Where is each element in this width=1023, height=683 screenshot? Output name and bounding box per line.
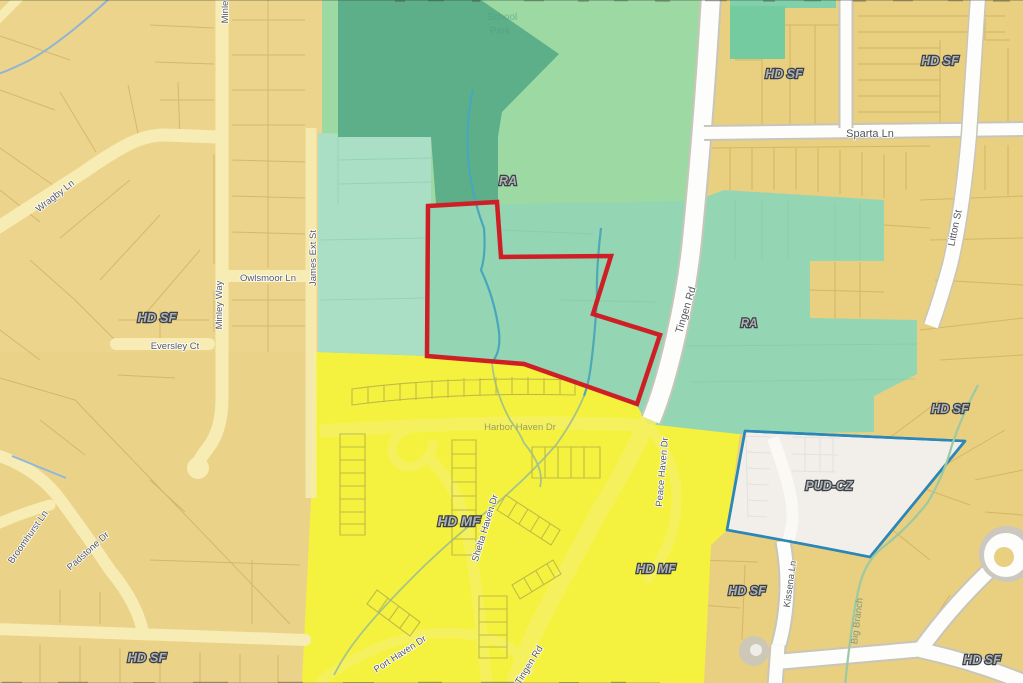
svg-text:HD SF: HD SF <box>138 310 178 325</box>
svg-text:James Ext St: James Ext St <box>308 230 319 286</box>
svg-text:RA: RA <box>499 174 517 188</box>
svg-text:Owlsmoor Ln: Owlsmoor Ln <box>240 273 296 284</box>
svg-text:Minley Way: Minley Way <box>214 280 225 329</box>
svg-text:Eversley Ct: Eversley Ct <box>151 341 200 352</box>
svg-text:HD SF: HD SF <box>921 54 959 68</box>
svg-text:RA: RA <box>741 318 758 330</box>
svg-text:School: School <box>487 12 518 23</box>
svg-text:HD SF: HD SF <box>765 67 803 81</box>
svg-text:PUD-CZ: PUD-CZ <box>805 479 854 493</box>
svg-text:HD SF: HD SF <box>128 650 168 665</box>
svg-text:HD SF: HD SF <box>963 653 1001 667</box>
svg-text:HD MF: HD MF <box>636 562 676 576</box>
svg-text:Sparta Ln: Sparta Ln <box>846 128 894 140</box>
svg-text:HD SF: HD SF <box>931 402 969 416</box>
svg-text:HD SF: HD SF <box>728 584 766 598</box>
svg-text:Park: Park <box>490 26 512 37</box>
svg-text:Harbor Haven Dr: Harbor Haven Dr <box>484 422 556 433</box>
svg-text:HD MF: HD MF <box>438 514 481 529</box>
svg-text:Minle: Minle <box>220 1 231 24</box>
